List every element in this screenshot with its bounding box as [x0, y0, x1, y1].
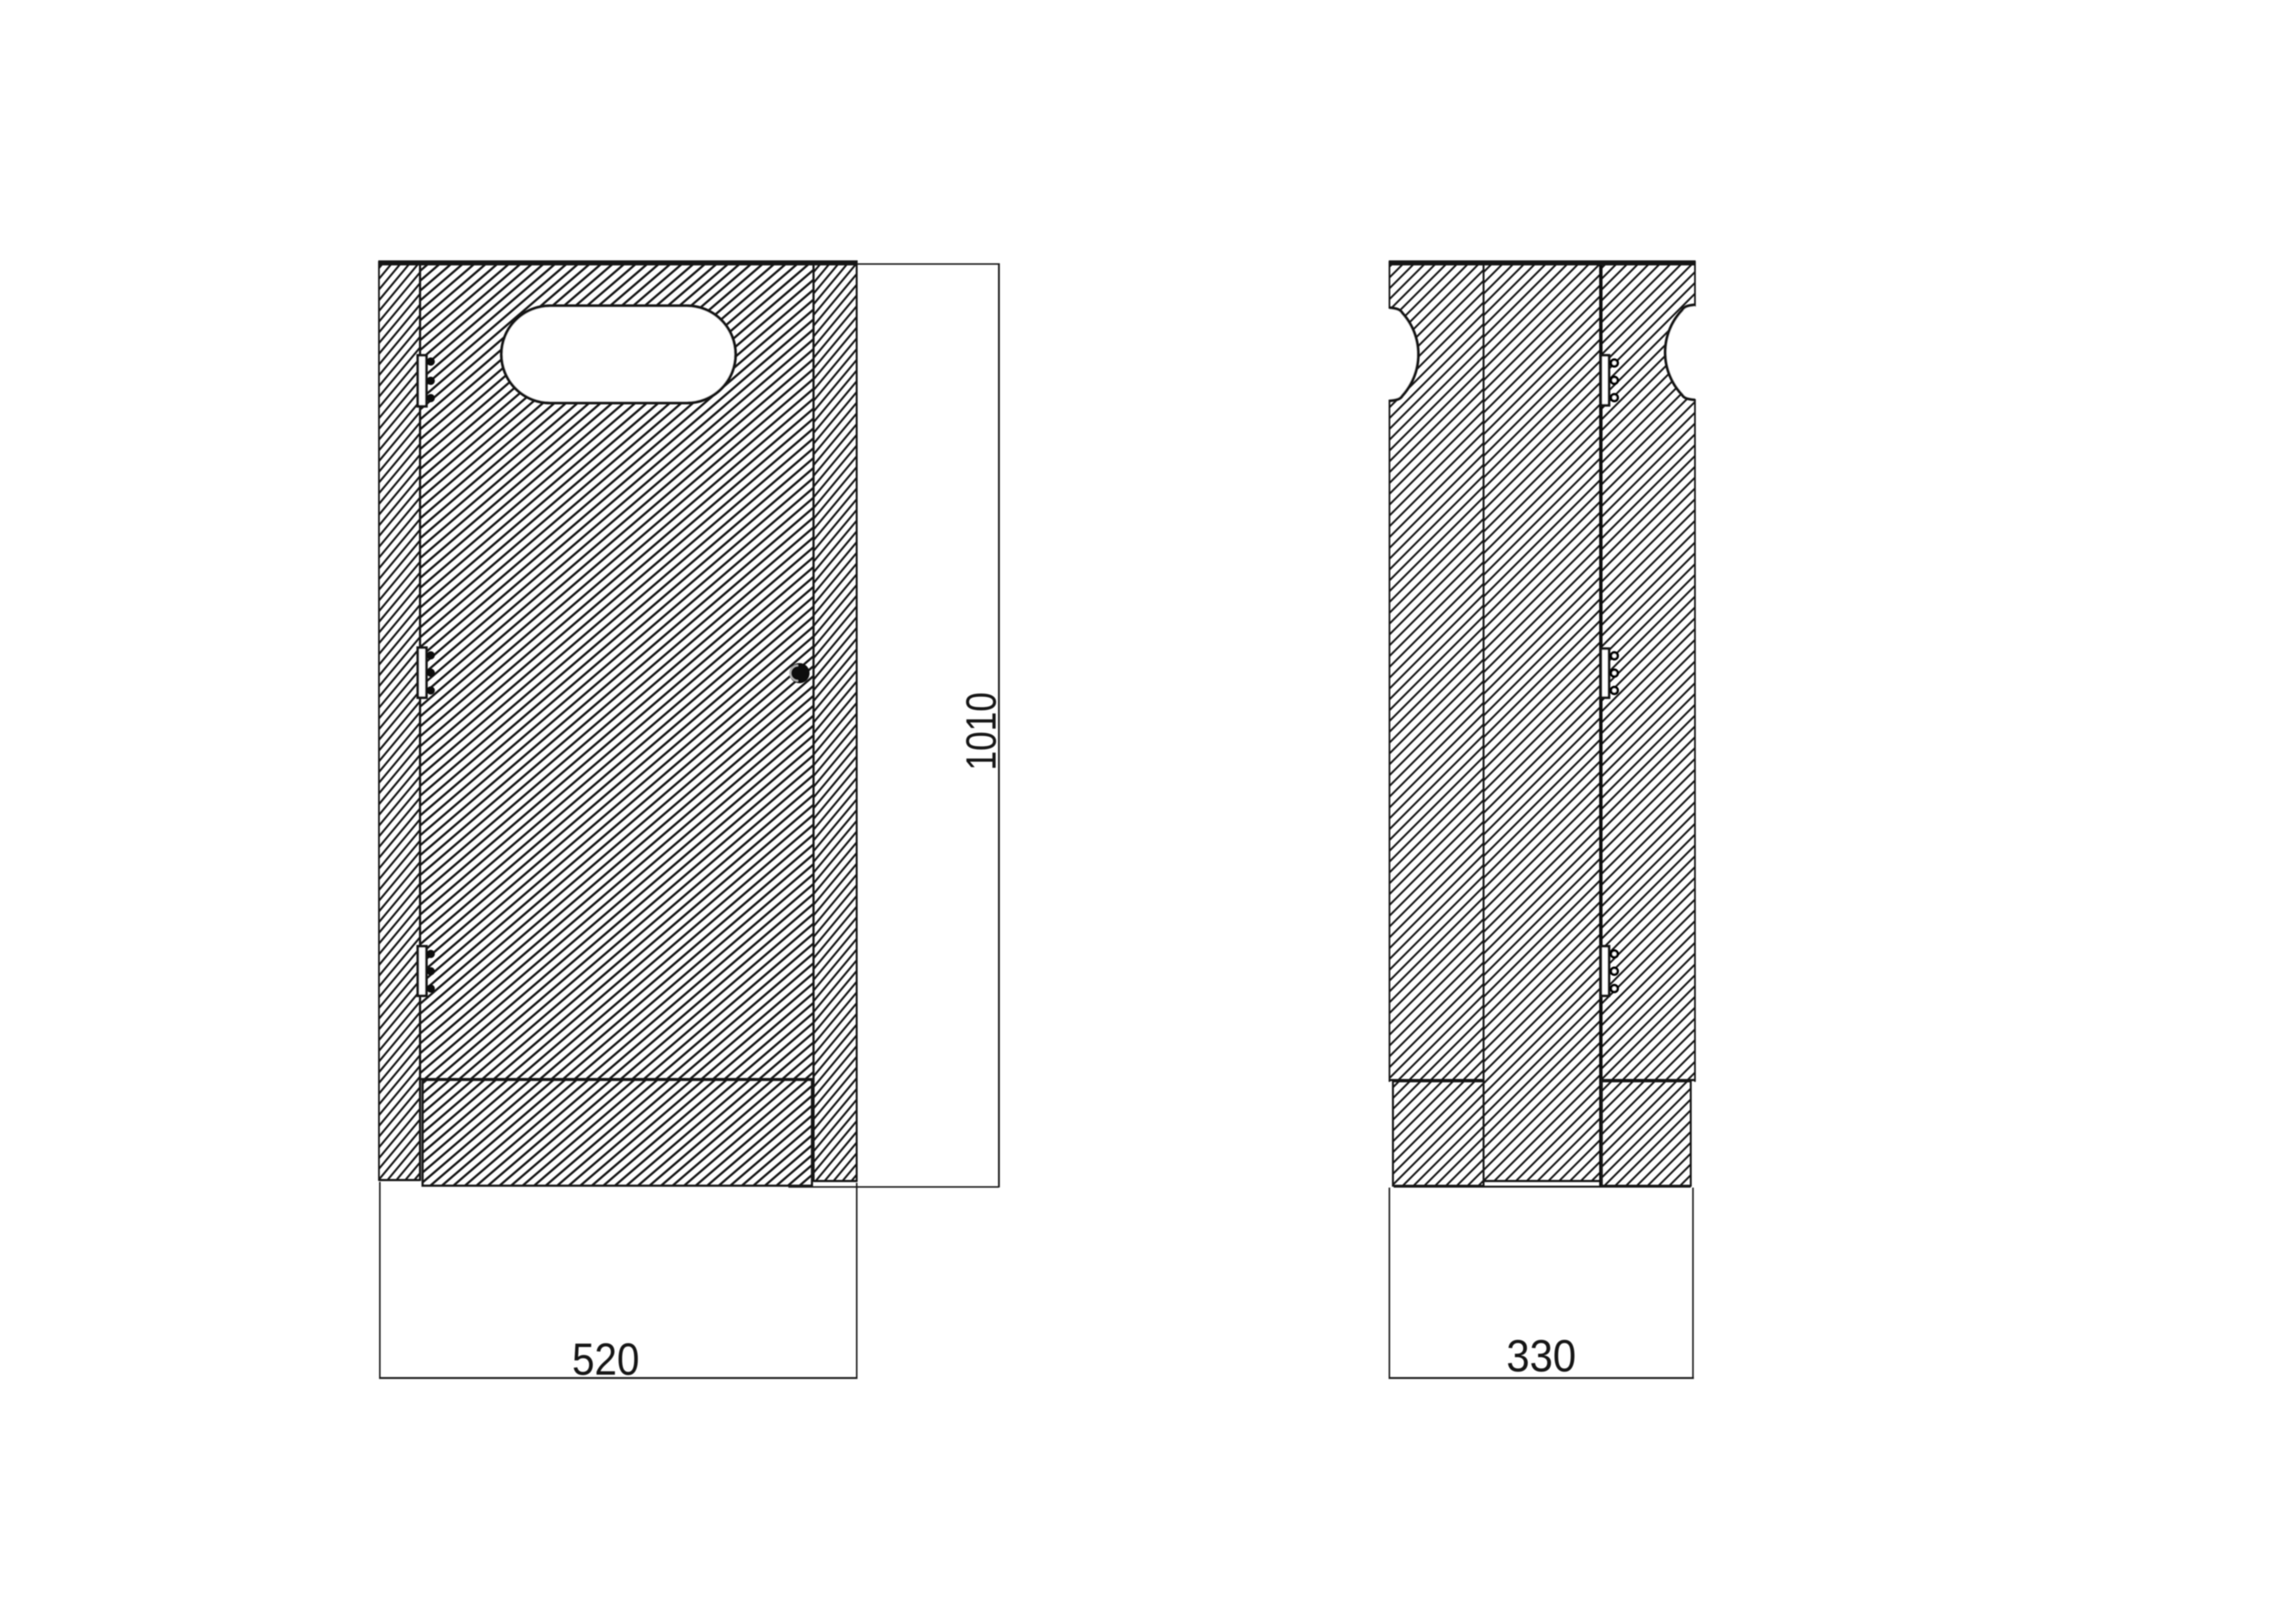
svg-text:520: 520 [572, 1334, 639, 1384]
svg-text:330: 330 [1507, 1330, 1576, 1381]
svg-text:1010: 1010 [957, 692, 1005, 771]
